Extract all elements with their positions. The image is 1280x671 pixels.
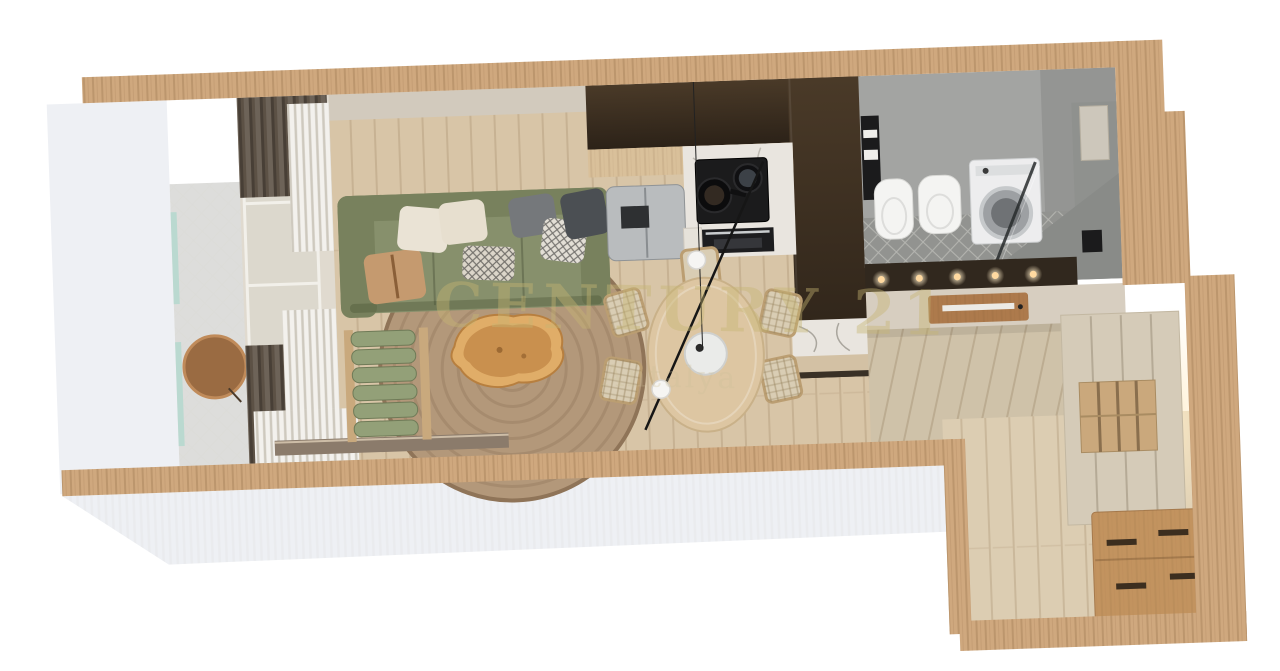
lounge-roll [353,384,417,401]
bathroom [858,67,1123,296]
peninsula-marble-end [792,318,870,359]
balcony [170,182,254,468]
toilet [874,178,914,239]
serving-disk [684,332,727,375]
floorplan-render [0,0,1280,671]
shower-niche [1079,106,1109,161]
pillow-pattern [462,245,515,281]
floorplan-scene: CENTURY 21 Antalya [0,0,1280,671]
drawer-handle [1158,529,1188,536]
fridge-dispenser [621,206,650,229]
shower-mixer [1082,230,1103,253]
pendant-globe [652,380,671,399]
sofa [337,187,613,319]
bidet [918,175,962,234]
oven-window [714,238,762,250]
chair-weave [599,357,642,405]
wall-grain [1117,111,1191,285]
pendant-globe [687,251,706,270]
pillow-dark [559,187,611,241]
lounge-roll [351,330,415,347]
towel [863,130,877,138]
lounge-roll [354,420,418,437]
lounge-roll [351,348,415,365]
drawer-handle [1116,582,1146,589]
sheer-ripple [287,103,334,252]
left-outer-wall-face [47,100,181,494]
lounge-roll [352,366,416,383]
balcony-side-table [183,335,247,399]
drawer-handle [1107,539,1137,546]
towel [864,150,878,160]
wall-grain [1114,40,1165,122]
lounge-roll [353,402,417,419]
sheer-ripple [254,408,360,464]
pillow-cream [438,198,489,245]
live-edge-coffee-table [450,313,564,389]
